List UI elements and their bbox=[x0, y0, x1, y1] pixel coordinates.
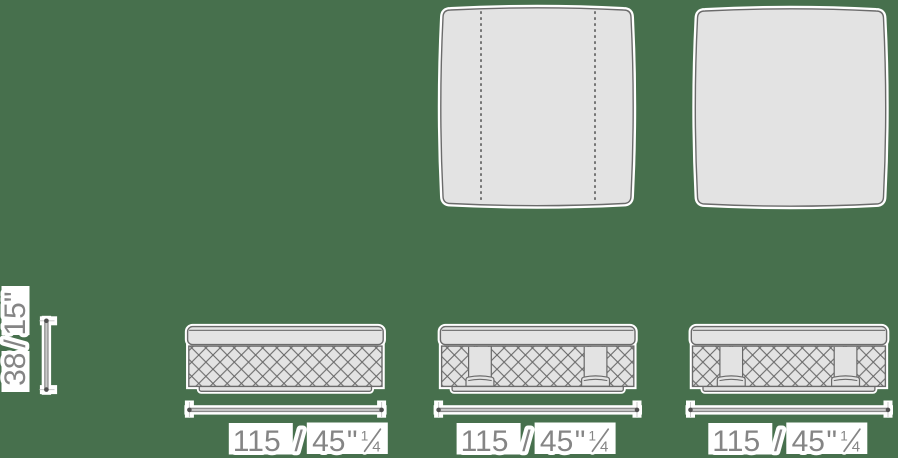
svg-text:/: / bbox=[0, 339, 32, 348]
svg-text:115/45": 115/45" bbox=[461, 425, 586, 458]
svg-text:115/45": 115/45" bbox=[712, 425, 837, 458]
svg-text:115/45": 115/45" bbox=[233, 425, 358, 458]
svg-text:1: 1 bbox=[840, 428, 848, 443]
svg-text:4: 4 bbox=[372, 438, 380, 455]
svg-text:1: 1 bbox=[589, 428, 597, 443]
svg-text:4: 4 bbox=[852, 438, 860, 455]
svg-text:4: 4 bbox=[600, 438, 608, 455]
svg-text:15": 15" bbox=[0, 291, 32, 335]
svg-text:38: 38 bbox=[0, 353, 32, 386]
svg-text:1: 1 bbox=[361, 428, 369, 443]
